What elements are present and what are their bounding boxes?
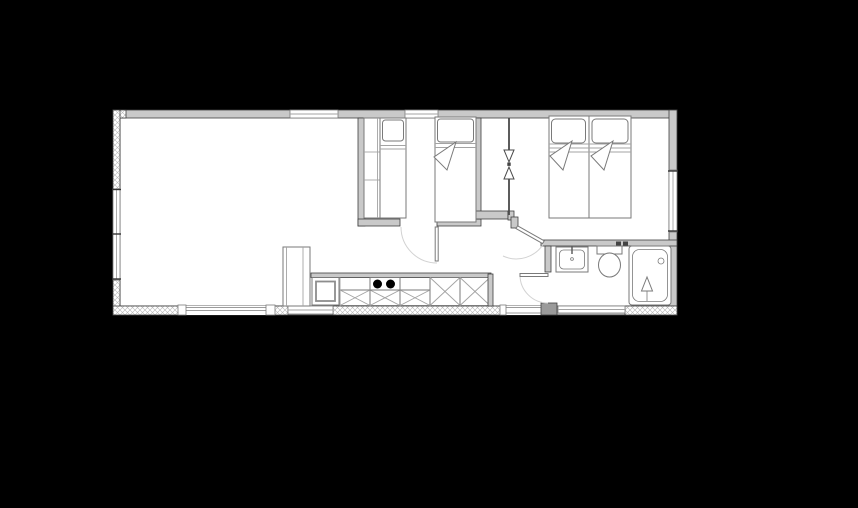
appliance-cabinet-x-1 xyxy=(430,278,460,306)
pillow xyxy=(383,120,404,141)
window-south-bathroom xyxy=(558,306,625,313)
wall-bathroom-north xyxy=(541,240,677,246)
screenshot-canvas xyxy=(0,0,858,508)
appliance-cabinet-x-2 xyxy=(460,278,490,306)
entrance-pier xyxy=(541,303,557,315)
counter-edge xyxy=(311,273,491,278)
sink-cabinet xyxy=(312,278,339,306)
door-leaf xyxy=(435,227,438,261)
patio-opening xyxy=(178,305,275,315)
pillow xyxy=(592,119,628,143)
single-bed-2 xyxy=(434,117,476,222)
jamb-post xyxy=(500,305,506,315)
wardrobe xyxy=(364,118,380,218)
washbasin xyxy=(556,247,588,273)
single-bed-1 xyxy=(380,118,406,218)
double-bed xyxy=(549,116,631,218)
counter-end-post xyxy=(488,274,493,306)
window-south-kitchen xyxy=(288,306,333,314)
jamb-post xyxy=(178,305,186,315)
window-north-1 xyxy=(290,110,338,118)
base-cabinet-x-1 xyxy=(340,290,370,306)
jamb-post xyxy=(266,305,275,315)
wall-hall-south xyxy=(474,211,508,219)
wall-hatch-west-upper xyxy=(113,110,120,189)
entrance-opening xyxy=(500,305,541,315)
bedroom-2-furniture xyxy=(549,116,631,218)
refrigerator xyxy=(283,247,310,306)
bathtub xyxy=(629,246,671,305)
toilet xyxy=(597,246,622,277)
wall-bedroom1-south-a xyxy=(358,219,400,226)
cooktop xyxy=(370,278,400,291)
wall-hatch-south-3 xyxy=(333,306,504,315)
base-cabinet-x-3 xyxy=(400,290,430,306)
window-east xyxy=(668,170,678,232)
wall-bathroom-west xyxy=(545,246,551,272)
window-north-2 xyxy=(405,110,438,118)
burner-icon xyxy=(386,280,395,289)
pillow xyxy=(438,119,474,142)
toilet-bowl xyxy=(599,253,621,277)
wall-hatch-south-1 xyxy=(113,306,183,315)
door-leaf xyxy=(520,274,548,277)
wall-hatch-south-4 xyxy=(625,306,677,315)
floor-plan-image xyxy=(0,0,858,508)
pillow xyxy=(552,119,586,143)
window-west xyxy=(112,189,121,280)
base-cabinet-x-2 xyxy=(370,290,400,306)
burner-icon xyxy=(373,280,382,289)
